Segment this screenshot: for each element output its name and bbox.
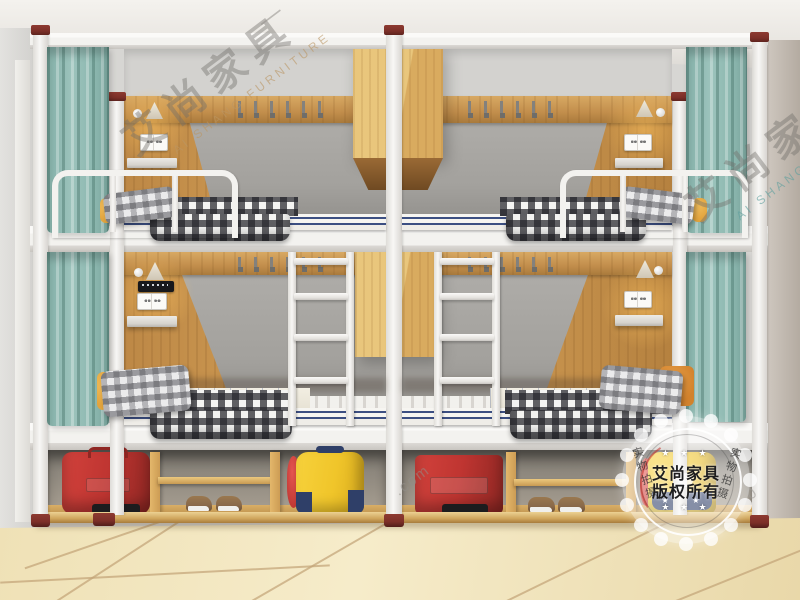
coat-hooks — [238, 101, 324, 118]
coat-hooks — [468, 101, 554, 118]
post-cap — [108, 92, 126, 101]
ladder-rung — [294, 293, 348, 300]
lamp-bulb-icon — [656, 108, 665, 117]
power-outlet — [624, 134, 652, 151]
post-foot — [750, 515, 769, 528]
ladder-rung — [440, 377, 494, 384]
ladder-rung — [294, 377, 348, 384]
charging-panel — [138, 281, 174, 292]
wall-shelf — [127, 158, 177, 168]
guard-rail-bar — [172, 176, 178, 232]
power-outlet — [624, 291, 652, 308]
guard-rail — [52, 170, 238, 238]
post-cap — [384, 25, 404, 35]
power-outlet — [137, 293, 167, 310]
cubby-shelf — [158, 477, 274, 484]
bag-trim — [296, 492, 312, 514]
shoe — [528, 497, 555, 512]
ladder-rung — [440, 258, 494, 265]
lamp-bulb-icon — [134, 268, 143, 277]
ladder-rung — [440, 293, 494, 300]
blanket-drape — [150, 410, 292, 439]
shoe — [216, 496, 242, 511]
power-outlet — [140, 134, 168, 151]
copyright-stamp: ★ ★ ★ 艾尚家具 版权所有 ★ ★ ★ 实物拍摄 实物拍摄 — [620, 414, 752, 546]
guard-rail-bar — [110, 176, 116, 232]
shoe — [186, 496, 212, 511]
frame-post — [110, 100, 124, 515]
suitcase-label — [430, 477, 488, 494]
bag-trim — [348, 490, 364, 514]
right-wall — [766, 40, 800, 540]
pillow — [598, 365, 684, 416]
product-photo-bunk-bed-room: ★ ★ ★ — [0, 0, 800, 600]
cubby-shelf — [514, 479, 628, 486]
wall-shelf — [615, 315, 663, 326]
cubby-side-panel — [270, 452, 280, 513]
frame-post — [386, 33, 402, 525]
guard-rail-bar — [620, 176, 626, 232]
pillow — [100, 364, 192, 417]
ladder-rung — [294, 258, 348, 265]
lamp-bulb-icon — [133, 109, 142, 118]
ladder-rung — [294, 334, 348, 341]
guard-rail-bar — [682, 176, 688, 232]
post-cap — [750, 32, 769, 42]
post-foot — [93, 513, 115, 526]
post-foot — [31, 514, 50, 527]
bag-handle — [316, 446, 344, 453]
guard-rail — [560, 170, 748, 238]
wall-shelf — [127, 316, 177, 327]
lamp-bulb-icon — [654, 266, 663, 275]
post-cap — [31, 25, 50, 35]
shoe — [558, 497, 585, 512]
wall-shelf — [615, 158, 663, 168]
stamp-stars-bottom: ★ ★ ★ — [620, 502, 752, 513]
frame-post — [33, 33, 48, 525]
post-foot — [384, 514, 404, 527]
privacy-curtain — [686, 252, 746, 422]
left-wall-trim — [15, 60, 30, 522]
ladder-rung — [440, 334, 494, 341]
frame-post — [752, 40, 767, 525]
